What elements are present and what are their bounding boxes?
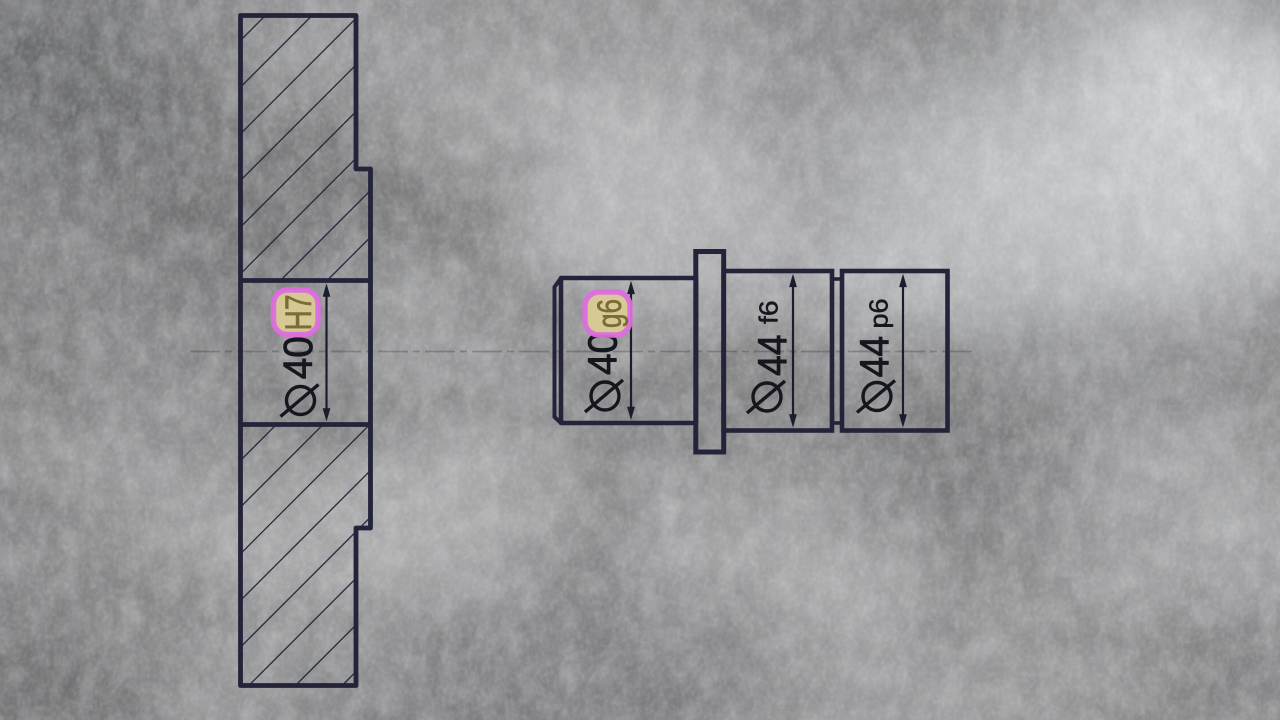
svg-text:44: 44 <box>750 335 796 377</box>
svg-text:40: 40 <box>275 336 321 379</box>
svg-text:H7: H7 <box>278 295 319 331</box>
svg-text:g6: g6 <box>591 299 629 328</box>
svg-text:f6: f6 <box>754 301 784 325</box>
svg-text:44: 44 <box>852 336 898 378</box>
svg-text:p6: p6 <box>864 299 894 329</box>
svg-text:40: 40 <box>580 332 626 375</box>
